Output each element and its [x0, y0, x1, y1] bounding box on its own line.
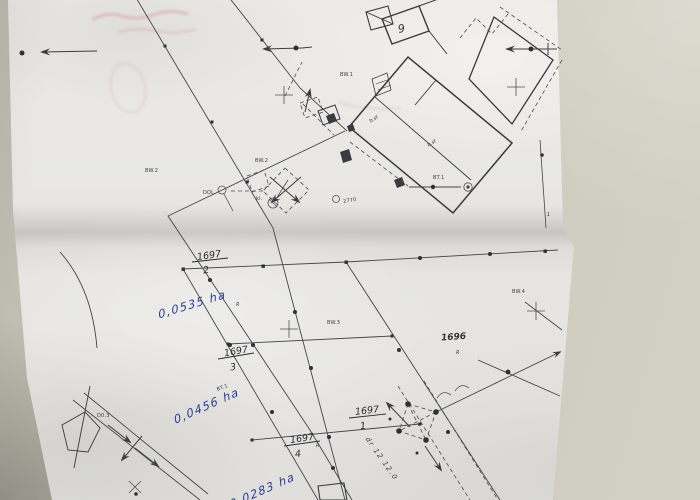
- curl-marks: [437, 386, 469, 398]
- code-label: BW.2: [145, 168, 158, 174]
- point-number: 2770: [343, 197, 357, 205]
- survey-drawing: 1697 2 1697 3 1697 1 1697 4 1696 R R R 0…: [0, 0, 700, 500]
- code-label: BW.4: [512, 289, 525, 295]
- code-label: kl.: [256, 196, 263, 202]
- code-label: BT.1: [433, 175, 444, 181]
- shed-diagonal: [366, 12, 393, 24]
- parcel-denominator: 3: [229, 362, 237, 374]
- code-label: D0.3: [97, 413, 110, 419]
- code-label: DOL.: [203, 190, 216, 196]
- parcel-denominator: 1: [359, 421, 366, 433]
- technical-labels: 9 BW.1 BW.2 BW.2 BW.3 BW.4 b.st b.st BT.…: [97, 22, 550, 482]
- handwritten-area-a: 0,0535 ha: [157, 287, 227, 322]
- code-label: BW.1: [340, 72, 353, 78]
- cross-mark: [280, 320, 298, 338]
- code-label: BW.2: [255, 158, 268, 164]
- boundary-lines: [60, 0, 562, 500]
- cross-mark: [507, 78, 525, 96]
- land-use-code: R: [456, 350, 459, 356]
- code-label: BW.3: [327, 320, 340, 326]
- neighbor-parcel-number: 1696: [441, 332, 467, 344]
- land-use-code: R: [236, 302, 239, 308]
- photo-of-folded-map: 1697 2 1697 3 1697 1 1697 4 1696 R R R 0…: [0, 0, 700, 500]
- survey-symbols: [129, 78, 545, 493]
- x-mark: [129, 481, 141, 493]
- building-outlines: [62, 0, 553, 500]
- handwritten-areas: 0,0535 ha 0,0456 ha 0,0283 ha: [157, 287, 296, 500]
- four-point-symbol: [389, 401, 439, 454]
- parcel-denominator: 2: [202, 265, 210, 277]
- handwritten-area-d: 0,0283 ha: [228, 469, 297, 500]
- road-label: dr 12 12.0: [364, 436, 400, 483]
- handwritten-area-b: 0,0456 ha: [172, 384, 241, 426]
- parcel-labels: 1697 2 1697 3 1697 1 1697 4 1696 R R R: [192, 249, 467, 460]
- faint-red-handwriting: [92, 12, 400, 117]
- point-symbol: [333, 196, 340, 203]
- cross-mark: [275, 86, 293, 104]
- land-use-code: R: [316, 443, 319, 449]
- parcel-denominator: 4: [294, 448, 302, 460]
- building-number: 9: [397, 22, 406, 36]
- code-label: b.st: [368, 114, 380, 125]
- point-label: 1: [547, 212, 550, 218]
- building-fill-blocks: [326, 113, 405, 188]
- cross-mark: [527, 302, 545, 320]
